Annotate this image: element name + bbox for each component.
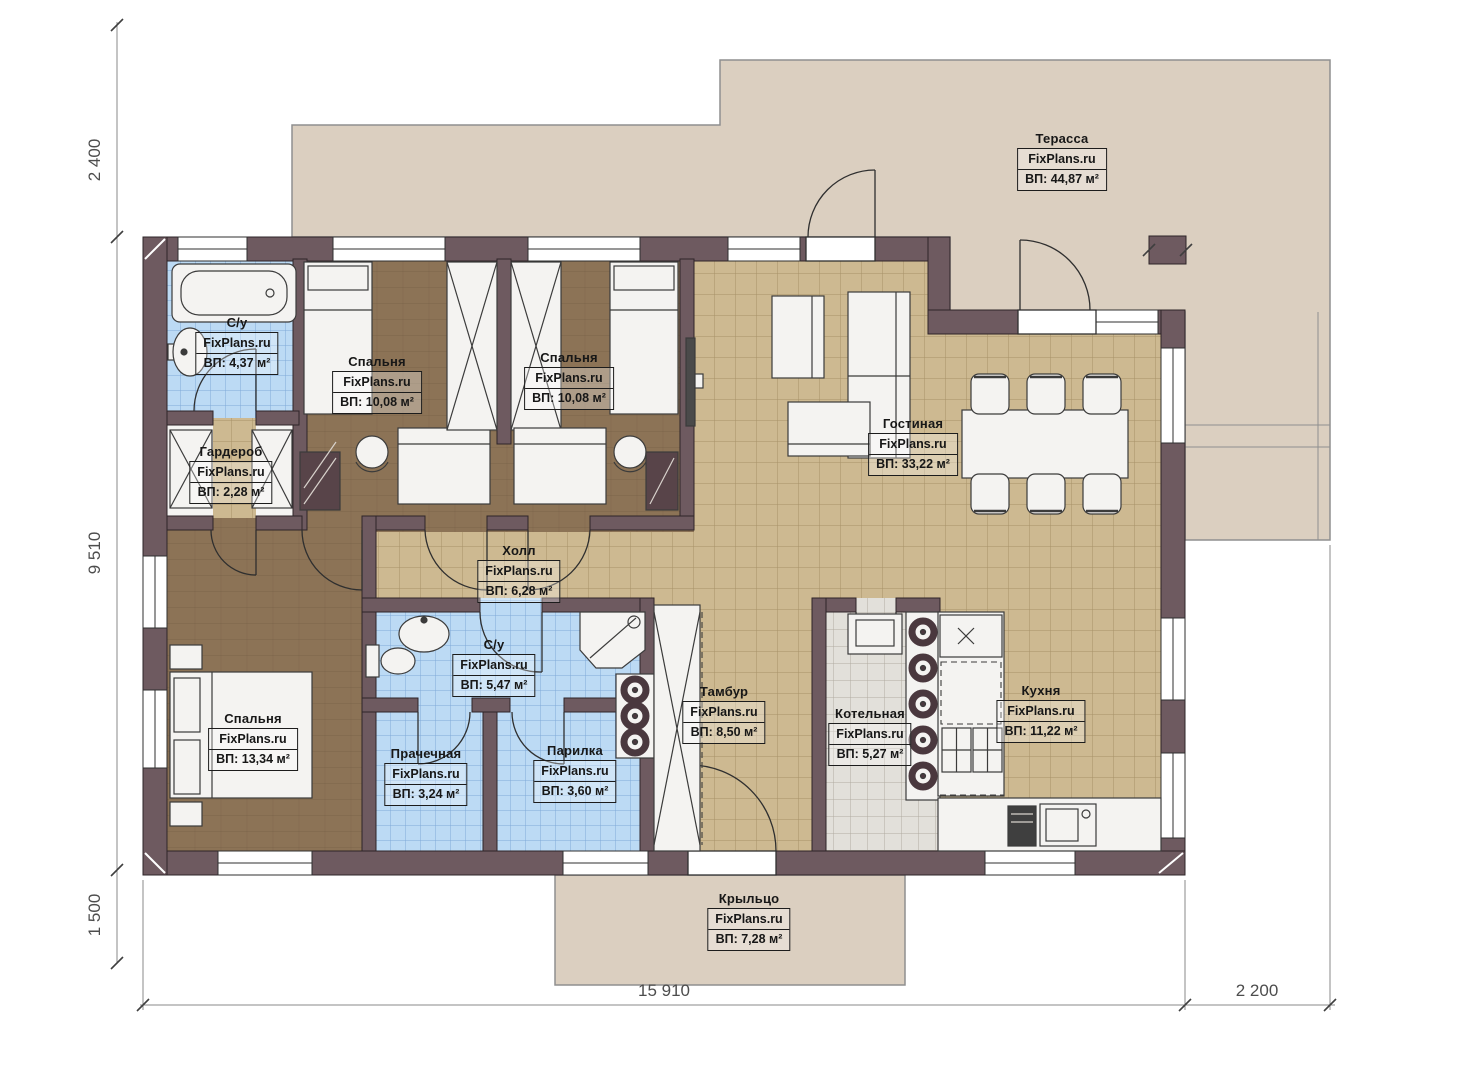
- floor-plan-canvas: Терасса FixPlans.ru ВП: 44,87 м² С/у Fix…: [0, 0, 1473, 1080]
- room-label-sauna: Парилка FixPlans.ru ВП: 3,60 м²: [533, 743, 616, 803]
- brand-watermark: FixPlans.ru: [683, 702, 764, 723]
- window: [1161, 348, 1185, 443]
- room-label-bathroom-2: С/у FixPlans.ru ВП: 5,47 м²: [452, 637, 535, 697]
- brand-watermark: FixPlans.ru: [869, 434, 957, 455]
- room-label-laundry: Прачечная FixPlans.ru ВП: 3,24 м²: [384, 746, 467, 806]
- room-info-box: FixPlans.ru ВП: 10,08 м²: [524, 367, 614, 410]
- terrace-post: [1143, 236, 1192, 264]
- brand-watermark: FixPlans.ru: [190, 462, 271, 483]
- brand-watermark: FixPlans.ru: [1018, 149, 1106, 170]
- brand-watermark: FixPlans.ru: [829, 724, 910, 745]
- desk: [398, 428, 490, 504]
- room-area: ВП: 11,22 м²: [997, 722, 1084, 742]
- room-name: Парилка: [533, 743, 616, 758]
- room-label-wardrobe: Гардероб FixPlans.ru ВП: 2,28 м²: [189, 444, 272, 504]
- room-name: Гардероб: [189, 444, 272, 459]
- window: [218, 851, 312, 875]
- window: [178, 237, 247, 261]
- room-info-box: FixPlans.ru ВП: 33,22 м²: [868, 433, 958, 476]
- armchair: [772, 296, 824, 378]
- desk: [514, 428, 606, 504]
- dimension-porch-depth: 1 500: [85, 894, 105, 937]
- boiler-unit: [848, 614, 902, 654]
- room-info-box: FixPlans.ru ВП: 44,87 м²: [1017, 148, 1107, 191]
- room-name: Тамбур: [682, 684, 765, 699]
- window: [143, 556, 167, 628]
- room-area: ВП: 3,60 м²: [534, 782, 615, 802]
- room-name: Крыльцо: [707, 891, 790, 906]
- room-area: ВП: 3,24 м²: [385, 785, 466, 805]
- brand-watermark: FixPlans.ru: [385, 764, 466, 785]
- brand-watermark: FixPlans.ru: [453, 655, 534, 676]
- room-area: ВП: 10,08 м²: [525, 389, 613, 409]
- room-name: Гостиная: [868, 416, 958, 431]
- window: [143, 690, 167, 768]
- room-label-vestibule: Тамбур FixPlans.ru ВП: 8,50 м²: [682, 684, 765, 744]
- room-label-hall: Холл FixPlans.ru ВП: 6,28 м²: [477, 543, 560, 603]
- washer-stack: [616, 674, 654, 758]
- room-area: ВП: 6,28 м²: [478, 582, 559, 602]
- room-area: ВП: 44,87 м²: [1018, 170, 1106, 190]
- toilet: [366, 645, 415, 677]
- dimension-terrace-width: 2 200: [1236, 981, 1279, 1001]
- wardrobe: [447, 262, 497, 430]
- room-info-box: FixPlans.ru ВП: 4,37 м²: [195, 332, 278, 375]
- room-label-bedroom-a: Спальня FixPlans.ru ВП: 10,08 м²: [332, 354, 422, 414]
- room-info-box: FixPlans.ru ВП: 7,28 м²: [707, 908, 790, 951]
- room-label-bathroom-1: С/у FixPlans.ru ВП: 4,37 м²: [195, 315, 278, 375]
- nightstand: [170, 802, 202, 826]
- room-label-boiler-room: Котельная FixPlans.ru ВП: 5,27 м²: [828, 706, 911, 766]
- room-label-living-room: Гостиная FixPlans.ru ВП: 33,22 м²: [868, 416, 958, 476]
- dimension-terrace-depth: 2 400: [85, 139, 105, 182]
- room-area: ВП: 8,50 м²: [683, 723, 764, 743]
- brand-watermark: FixPlans.ru: [525, 368, 613, 389]
- room-area: ВП: 10,08 м²: [333, 393, 421, 413]
- room-label-porch: Крыльцо FixPlans.ru ВП: 7,28 м²: [707, 891, 790, 951]
- room-area: ВП: 5,27 м²: [829, 745, 910, 765]
- nightstand: [170, 645, 202, 669]
- brand-watermark: FixPlans.ru: [209, 729, 297, 750]
- room-label-bedroom-b: Спальня FixPlans.ru ВП: 10,08 м²: [524, 350, 614, 410]
- brand-watermark: FixPlans.ru: [534, 761, 615, 782]
- sink: [399, 616, 449, 652]
- bathtub: [172, 264, 296, 322]
- room-name: С/у: [452, 637, 535, 652]
- room-info-box: FixPlans.ru ВП: 5,47 м²: [452, 654, 535, 697]
- room-label-terrace: Терасса FixPlans.ru ВП: 44,87 м²: [1017, 131, 1107, 191]
- room-info-box: FixPlans.ru ВП: 10,08 м²: [332, 371, 422, 414]
- room-area: ВП: 7,28 м²: [708, 930, 789, 950]
- room-name: Спальня: [524, 350, 614, 365]
- dimension-house-width: 15 910: [638, 981, 690, 1001]
- room-info-box: FixPlans.ru ВП: 13,34 м²: [208, 728, 298, 771]
- window: [528, 237, 640, 261]
- room-name: Спальня: [332, 354, 422, 369]
- window: [333, 237, 445, 261]
- room-area: ВП: 5,47 м²: [453, 676, 534, 696]
- room-info-box: FixPlans.ru ВП: 3,60 м²: [533, 760, 616, 803]
- room-area: ВП: 2,28 м²: [190, 483, 271, 503]
- dresser: [646, 452, 678, 510]
- dimension-house-depth: 9 510: [85, 532, 105, 575]
- dishwasher: [1008, 806, 1036, 846]
- room-name: Кухня: [996, 683, 1085, 698]
- window: [563, 851, 648, 875]
- room-area: ВП: 33,22 м²: [869, 455, 957, 475]
- window: [1096, 310, 1158, 334]
- room-info-box: FixPlans.ru ВП: 3,24 м²: [384, 763, 467, 806]
- room-name: Прачечная: [384, 746, 467, 761]
- room-name: Спальня: [208, 711, 298, 726]
- brand-watermark: FixPlans.ru: [333, 372, 421, 393]
- window: [985, 851, 1075, 875]
- brand-watermark: FixPlans.ru: [997, 701, 1084, 722]
- room-area: ВП: 13,34 м²: [209, 750, 297, 770]
- brand-watermark: FixPlans.ru: [196, 333, 277, 354]
- room-name: С/у: [195, 315, 278, 330]
- dresser: [300, 442, 340, 510]
- room-info-box: FixPlans.ru ВП: 2,28 м²: [189, 461, 272, 504]
- window: [728, 237, 800, 261]
- room-label-kitchen: Кухня FixPlans.ru ВП: 11,22 м²: [996, 683, 1085, 743]
- room-info-box: FixPlans.ru ВП: 6,28 м²: [477, 560, 560, 603]
- room-area: ВП: 4,37 м²: [196, 354, 277, 374]
- room-info-box: FixPlans.ru ВП: 8,50 м²: [682, 701, 765, 744]
- window: [1161, 618, 1185, 700]
- window: [1161, 753, 1185, 838]
- fridge: [940, 615, 1002, 657]
- bed: [610, 262, 678, 414]
- brand-watermark: FixPlans.ru: [708, 909, 789, 930]
- kitchen-sink: [1040, 804, 1096, 846]
- room-info-box: FixPlans.ru ВП: 5,27 м²: [828, 723, 911, 766]
- room-info-box: FixPlans.ru ВП: 11,22 м²: [996, 700, 1085, 743]
- room-name: Терасса: [1017, 131, 1107, 146]
- room-label-bedroom-c: Спальня FixPlans.ru ВП: 13,34 м²: [208, 711, 298, 771]
- room-name: Котельная: [828, 706, 911, 721]
- dining-table: [962, 410, 1128, 478]
- brand-watermark: FixPlans.ru: [478, 561, 559, 582]
- room-name: Холл: [477, 543, 560, 558]
